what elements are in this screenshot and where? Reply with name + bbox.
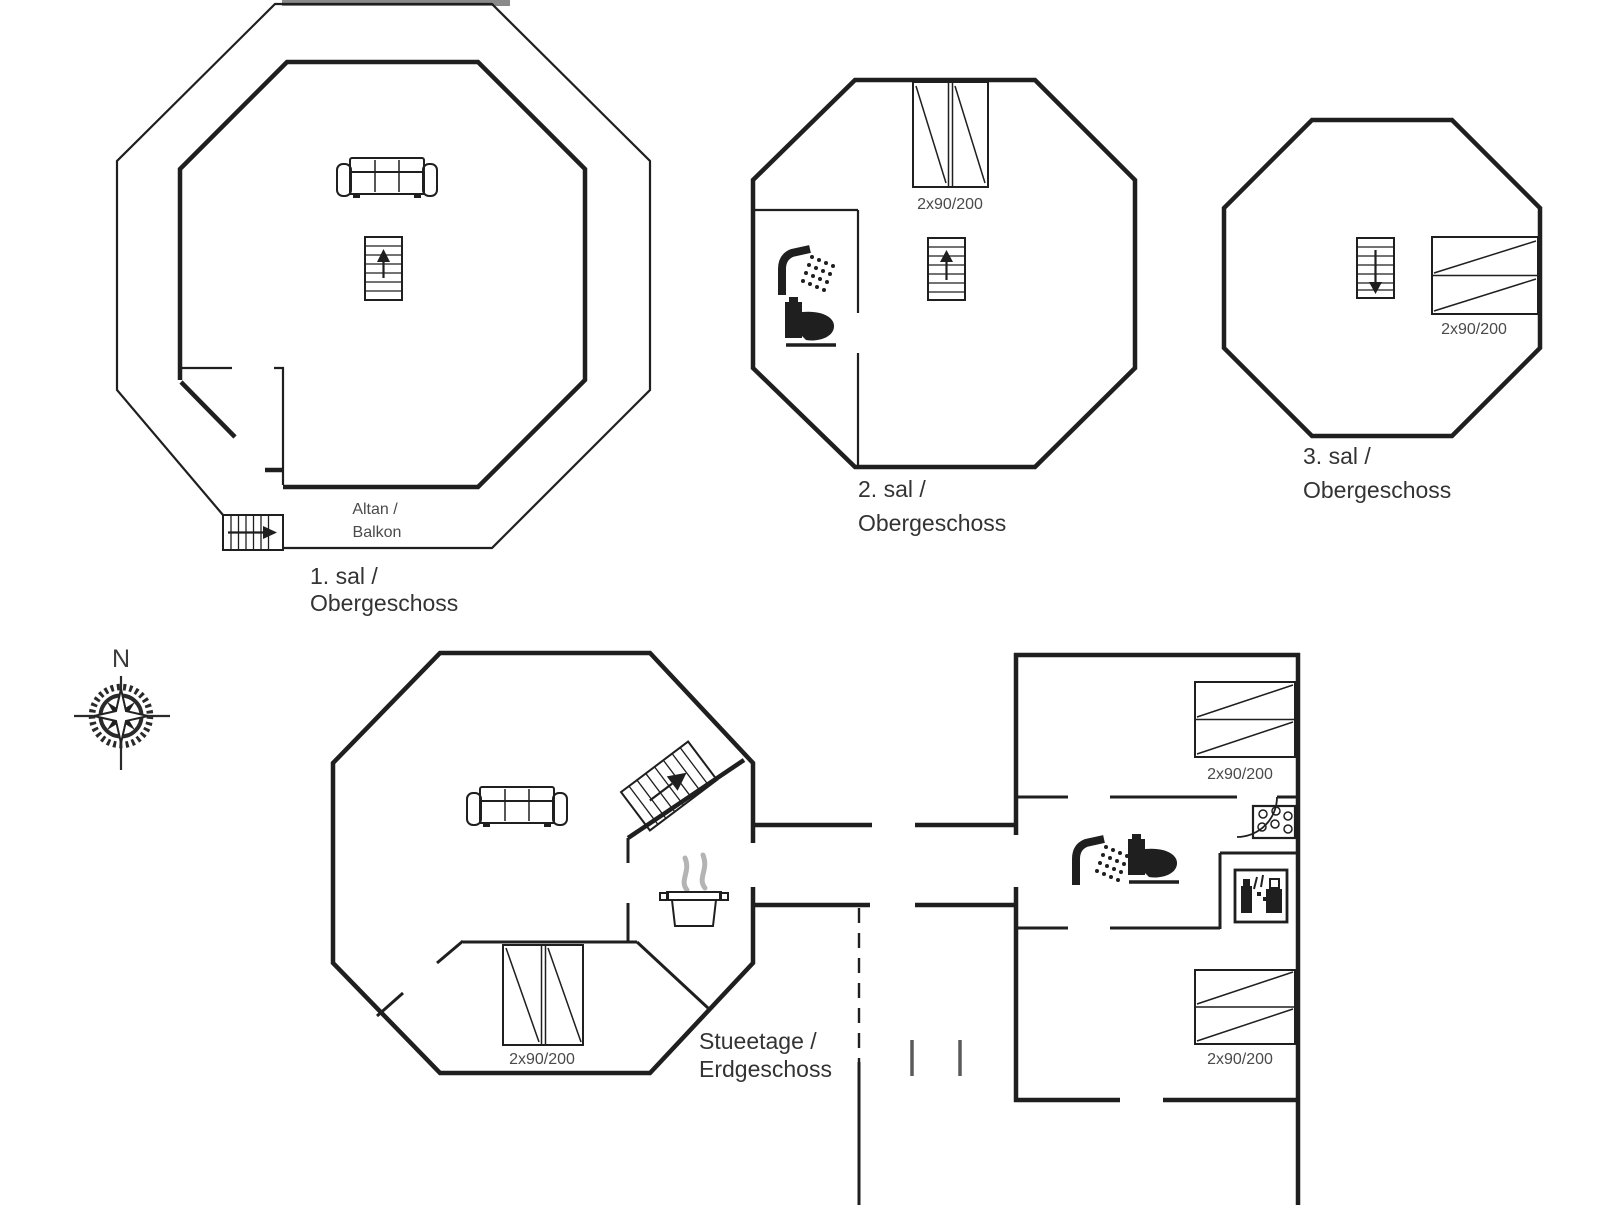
shower-icon — [782, 249, 835, 295]
floor-title: 3. sal / — [1303, 443, 1371, 469]
floor-title: 2. sal / — [858, 476, 926, 502]
floor-plan-canvas: Altan / Balkon 1. sal / Obergeschoss 2x9… — [0, 0, 1606, 1205]
double-bed-icon — [913, 82, 988, 187]
floor-title: Obergeschoss — [858, 510, 1006, 536]
first-floor-diagonal-wall — [181, 382, 235, 437]
floor-plan-third-floor: 2x90/200 3. sal / Obergeschoss — [1224, 120, 1540, 503]
bedroom-diagonal-wall — [637, 942, 708, 1008]
toilet-icon — [785, 297, 836, 345]
double-bed-icon — [1195, 970, 1295, 1044]
external-staircase-icon — [223, 515, 283, 550]
balcony-label: Altan / — [352, 501, 398, 518]
hall-diagonal-wall — [377, 993, 403, 1016]
double-bed-icon — [1195, 682, 1295, 757]
washing-machine-icon — [1235, 870, 1287, 922]
bed-size-label: 2x90/200 — [917, 196, 983, 213]
hall-diagonal-wall — [437, 941, 463, 963]
sofa-icon — [337, 158, 437, 198]
sofa-icon — [467, 787, 567, 827]
bed-size-label: 2x90/200 — [1207, 766, 1273, 783]
third-floor-walls — [1224, 120, 1540, 436]
floor-title: Erdgeschoss — [699, 1056, 832, 1082]
double-bed-icon — [1432, 237, 1538, 314]
floor-title: Stueetage / — [699, 1028, 817, 1054]
floor-title: Obergeschoss — [310, 590, 458, 616]
floor-plan-ground-floor: 2x90/200 Stueetage / Erdgeschoss — [333, 653, 1300, 1205]
first-floor-partition-wall — [274, 368, 283, 485]
floor-plan-second-floor: 2x90/200 2. sal / Ober — [753, 80, 1135, 536]
balcony-label: Balkon — [353, 524, 402, 541]
shower-icon — [1076, 839, 1129, 885]
toilet-icon — [1128, 834, 1179, 882]
bed-size-label: 2x90/200 — [509, 1051, 575, 1068]
ground-octagon-walls — [333, 653, 753, 1073]
staircase-down-icon — [1357, 238, 1394, 298]
floor-title: 1. sal / — [310, 563, 378, 589]
bed-size-label: 2x90/200 — [1441, 321, 1507, 338]
cooking-pot-icon — [660, 855, 728, 926]
staircase-up-icon — [928, 238, 965, 300]
staircase-up-icon — [365, 237, 402, 300]
double-bed-icon — [503, 945, 583, 1045]
floor-title: Obergeschoss — [1303, 477, 1451, 503]
bed-size-label: 2x90/200 — [1207, 1051, 1273, 1068]
north-label: N — [112, 645, 130, 673]
ground-floor-annex: 2x90/200 2x90/200 — [1014, 653, 1300, 1205]
door-swing-arc — [1237, 797, 1277, 837]
floor-plan-page: Altan / Balkon 1. sal / Obergeschoss 2x9… — [0, 0, 1606, 1205]
floor-plan-first-floor: Altan / Balkon 1. sal / Obergeschoss — [117, 3, 650, 616]
compass-rose-icon: N — [74, 645, 170, 770]
